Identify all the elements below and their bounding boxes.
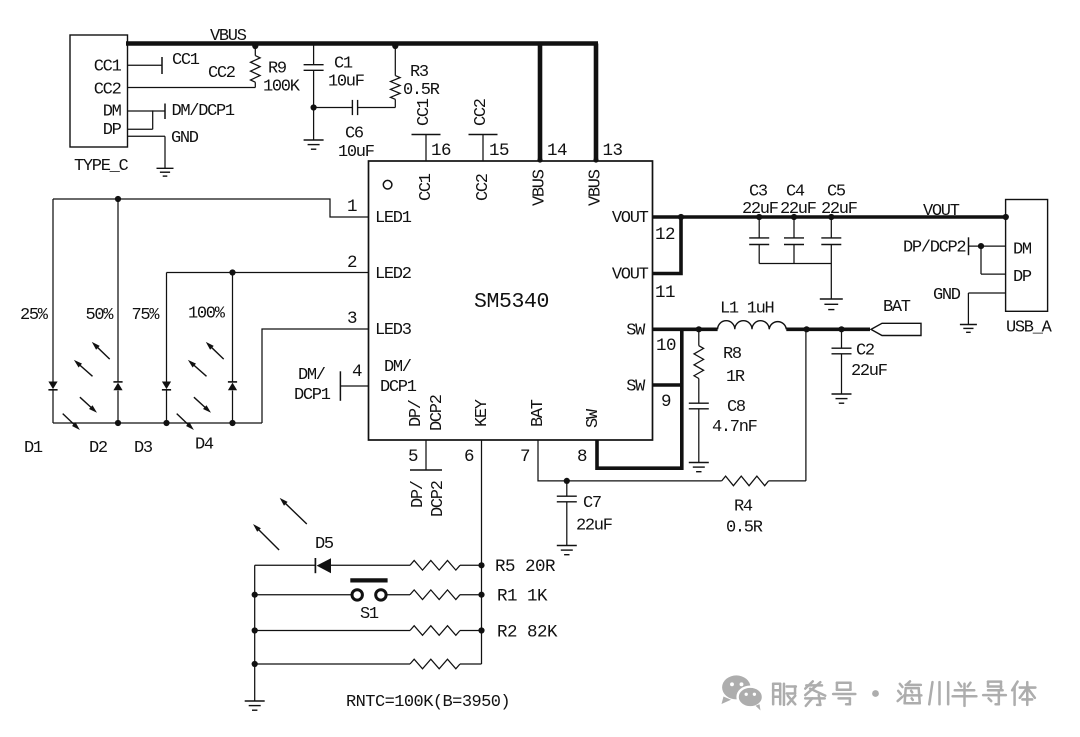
svg-text:S1: S1 — [360, 605, 379, 624]
svg-text:BAT: BAT — [529, 399, 548, 427]
svg-text:1R: 1R — [726, 368, 745, 387]
svg-text:DM: DM — [103, 103, 122, 122]
svg-text:TYPE_C: TYPE_C — [74, 157, 129, 176]
svg-text:VOUT: VOUT — [612, 209, 649, 228]
svg-text:8: 8 — [577, 447, 587, 467]
svg-text:CC2: CC2 — [474, 174, 493, 201]
svg-text:22uF: 22uF — [821, 200, 857, 219]
svg-text:CC2: CC2 — [94, 81, 121, 100]
svg-text:LED1: LED1 — [375, 209, 412, 228]
svg-text:CC1: CC1 — [94, 58, 122, 77]
svg-text:C8: C8 — [727, 398, 746, 417]
svg-text:RNTC=100K(B=3950): RNTC=100K(B=3950) — [346, 693, 510, 712]
svg-text:C4: C4 — [786, 183, 805, 202]
svg-text:DM: DM — [1013, 241, 1032, 260]
svg-text:9: 9 — [661, 392, 671, 412]
svg-text:75%: 75% — [132, 306, 161, 325]
svg-text:7: 7 — [520, 447, 530, 467]
svg-text:USB_A: USB_A — [1006, 319, 1053, 338]
svg-text:CC2: CC2 — [472, 99, 491, 126]
svg-text:4: 4 — [352, 362, 362, 382]
svg-text:DM/DCP1: DM/DCP1 — [172, 102, 235, 121]
svg-text:KEY: KEY — [473, 399, 492, 427]
svg-text:22uF: 22uF — [851, 362, 887, 381]
svg-text:0.5R: 0.5R — [726, 519, 763, 538]
svg-text:100%: 100% — [188, 305, 226, 324]
svg-text:3: 3 — [347, 309, 357, 329]
svg-text:DCP1: DCP1 — [294, 386, 331, 405]
svg-text:DCP2: DCP2 — [428, 395, 447, 431]
svg-text:2: 2 — [347, 253, 357, 273]
svg-text:DM/: DM/ — [384, 358, 412, 377]
svg-text:CC1: CC1 — [415, 98, 434, 126]
svg-text:22uF: 22uF — [576, 517, 612, 536]
svg-text:4.7nF: 4.7nF — [712, 418, 757, 437]
svg-text:R2 82K: R2 82K — [497, 623, 558, 643]
svg-text:R1 1K: R1 1K — [497, 587, 548, 607]
svg-text:R8: R8 — [723, 345, 742, 364]
svg-text:C6: C6 — [345, 125, 364, 144]
svg-text:C5: C5 — [827, 183, 846, 202]
svg-text:50%: 50% — [86, 306, 115, 325]
svg-text:DCP2: DCP2 — [429, 481, 448, 517]
svg-text:LED2: LED2 — [375, 265, 411, 284]
svg-text:D5: D5 — [315, 535, 334, 554]
svg-text:VOUT: VOUT — [612, 266, 649, 285]
svg-text:DCP1: DCP1 — [380, 378, 417, 397]
svg-text:D3: D3 — [134, 439, 153, 458]
svg-text:R5 20R: R5 20R — [495, 557, 556, 577]
svg-text:5: 5 — [408, 447, 418, 467]
svg-text:BAT: BAT — [883, 298, 911, 317]
svg-text:DP: DP — [103, 121, 122, 140]
svg-text:DP: DP — [1013, 268, 1032, 287]
svg-text:LED3: LED3 — [375, 321, 412, 340]
svg-text:CC1: CC1 — [172, 51, 200, 70]
svg-text:C7: C7 — [583, 494, 601, 513]
svg-text:15: 15 — [489, 141, 509, 161]
svg-text:R3: R3 — [410, 63, 429, 82]
svg-text:25%: 25% — [20, 306, 49, 325]
svg-text:SW: SW — [626, 378, 646, 397]
svg-text:22uF: 22uF — [780, 200, 816, 219]
svg-text:VBUS: VBUS — [531, 169, 550, 206]
svg-text:DP/DCP2: DP/DCP2 — [903, 239, 965, 258]
svg-text:1: 1 — [347, 197, 357, 217]
svg-text:DP/: DP/ — [409, 480, 428, 508]
svg-text:16: 16 — [431, 141, 451, 161]
svg-text:13: 13 — [603, 141, 623, 161]
svg-text:SW: SW — [626, 322, 646, 341]
svg-text:D4: D4 — [195, 436, 214, 455]
svg-text:DP/: DP/ — [407, 399, 426, 427]
svg-text:VOUT: VOUT — [923, 202, 960, 221]
svg-text:0.5R: 0.5R — [403, 81, 440, 100]
svg-text:CC1: CC1 — [417, 173, 436, 201]
svg-text:SW: SW — [584, 408, 603, 428]
svg-text:C3: C3 — [749, 183, 768, 202]
svg-text:L1 1uH: L1 1uH — [720, 300, 774, 319]
svg-text:10uF: 10uF — [338, 143, 374, 162]
svg-text:11: 11 — [655, 283, 675, 303]
svg-text:22uF: 22uF — [742, 200, 778, 219]
svg-text:DM/: DM/ — [298, 366, 326, 385]
svg-text:D2: D2 — [89, 439, 107, 458]
svg-text:R4: R4 — [734, 498, 753, 517]
svg-text:VBUS: VBUS — [587, 169, 606, 206]
svg-text:GND: GND — [171, 129, 199, 148]
svg-text:GND: GND — [933, 286, 961, 305]
svg-text:SM5340: SM5340 — [474, 290, 549, 314]
svg-text:12: 12 — [655, 225, 675, 245]
svg-text:D1: D1 — [24, 439, 43, 458]
svg-text:C2: C2 — [856, 342, 874, 361]
svg-text:100K: 100K — [263, 78, 301, 97]
svg-text:10: 10 — [656, 336, 676, 356]
svg-text:R9: R9 — [268, 60, 287, 79]
svg-text:CC2: CC2 — [208, 64, 235, 83]
svg-text:14: 14 — [547, 141, 567, 161]
svg-text:C1: C1 — [334, 55, 353, 74]
svg-text:10uF: 10uF — [328, 73, 364, 92]
svg-text:6: 6 — [464, 447, 474, 467]
